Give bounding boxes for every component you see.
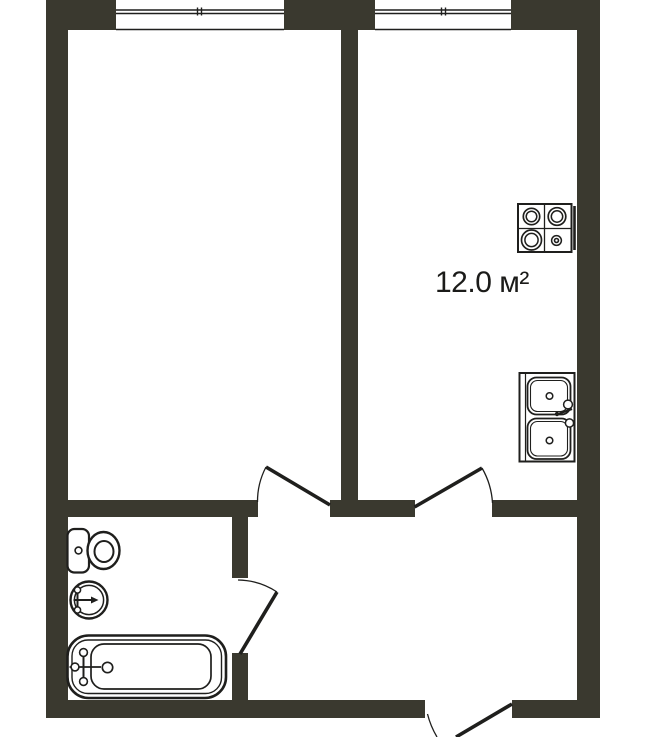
door-bathroom bbox=[238, 580, 277, 654]
flush-button bbox=[75, 547, 82, 554]
drain bbox=[546, 393, 553, 400]
door-leaf bbox=[456, 704, 512, 737]
faucet-handle bbox=[564, 400, 573, 409]
door-leaf bbox=[266, 467, 330, 505]
burner bbox=[526, 211, 537, 222]
wall-top-center bbox=[284, 0, 375, 30]
washbasin-icon bbox=[71, 582, 108, 619]
door-right-room bbox=[415, 468, 493, 507]
door-swing-arc bbox=[428, 714, 438, 737]
floor-plan-page: 12.0 м² bbox=[0, 0, 662, 737]
burner bbox=[551, 211, 562, 222]
wall-top-left bbox=[46, 0, 116, 30]
door-swing-arc bbox=[238, 580, 277, 592]
door-left-room bbox=[257, 467, 330, 505]
toilet-icon bbox=[68, 529, 120, 573]
drain bbox=[546, 437, 553, 444]
wall-room-divider bbox=[341, 30, 358, 500]
burner bbox=[525, 233, 538, 246]
faucet-tip bbox=[555, 412, 559, 416]
faucet-handle bbox=[74, 587, 80, 593]
door-leaf bbox=[240, 592, 277, 654]
toilet-bowl-inner bbox=[95, 541, 114, 562]
wall-mid-right bbox=[492, 500, 577, 517]
walls bbox=[46, 0, 600, 718]
wall-bathroom-upper bbox=[232, 517, 248, 578]
wall-mid-left bbox=[46, 500, 258, 517]
door-leaf bbox=[415, 468, 483, 507]
door-entrance bbox=[428, 704, 513, 737]
room-area-label: 12.0 м² bbox=[435, 266, 529, 299]
wall-right bbox=[577, 0, 600, 718]
kitchen-sink-icon bbox=[520, 373, 575, 462]
window-left-room bbox=[116, 8, 284, 30]
wall-left bbox=[46, 0, 68, 718]
faucet-handle bbox=[71, 663, 79, 671]
window-right-room bbox=[375, 8, 511, 30]
door-swing-arc bbox=[257, 467, 266, 502]
faucet-handle bbox=[80, 678, 88, 686]
faucet-handle bbox=[74, 607, 80, 613]
tub-drain bbox=[102, 662, 112, 672]
wall-bottom-left bbox=[46, 700, 425, 718]
wall-mid-center bbox=[330, 500, 415, 517]
bathtub-icon bbox=[68, 636, 227, 699]
faucet-handle bbox=[80, 649, 88, 657]
door-swing-arc bbox=[482, 468, 493, 503]
floor-plan: 12.0 м² bbox=[0, 0, 662, 737]
stove-icon bbox=[518, 204, 575, 252]
wall-bathroom-lower bbox=[232, 653, 248, 700]
burner bbox=[555, 239, 559, 243]
faucet-handle bbox=[565, 419, 573, 427]
wall-bottom-right bbox=[512, 700, 600, 718]
